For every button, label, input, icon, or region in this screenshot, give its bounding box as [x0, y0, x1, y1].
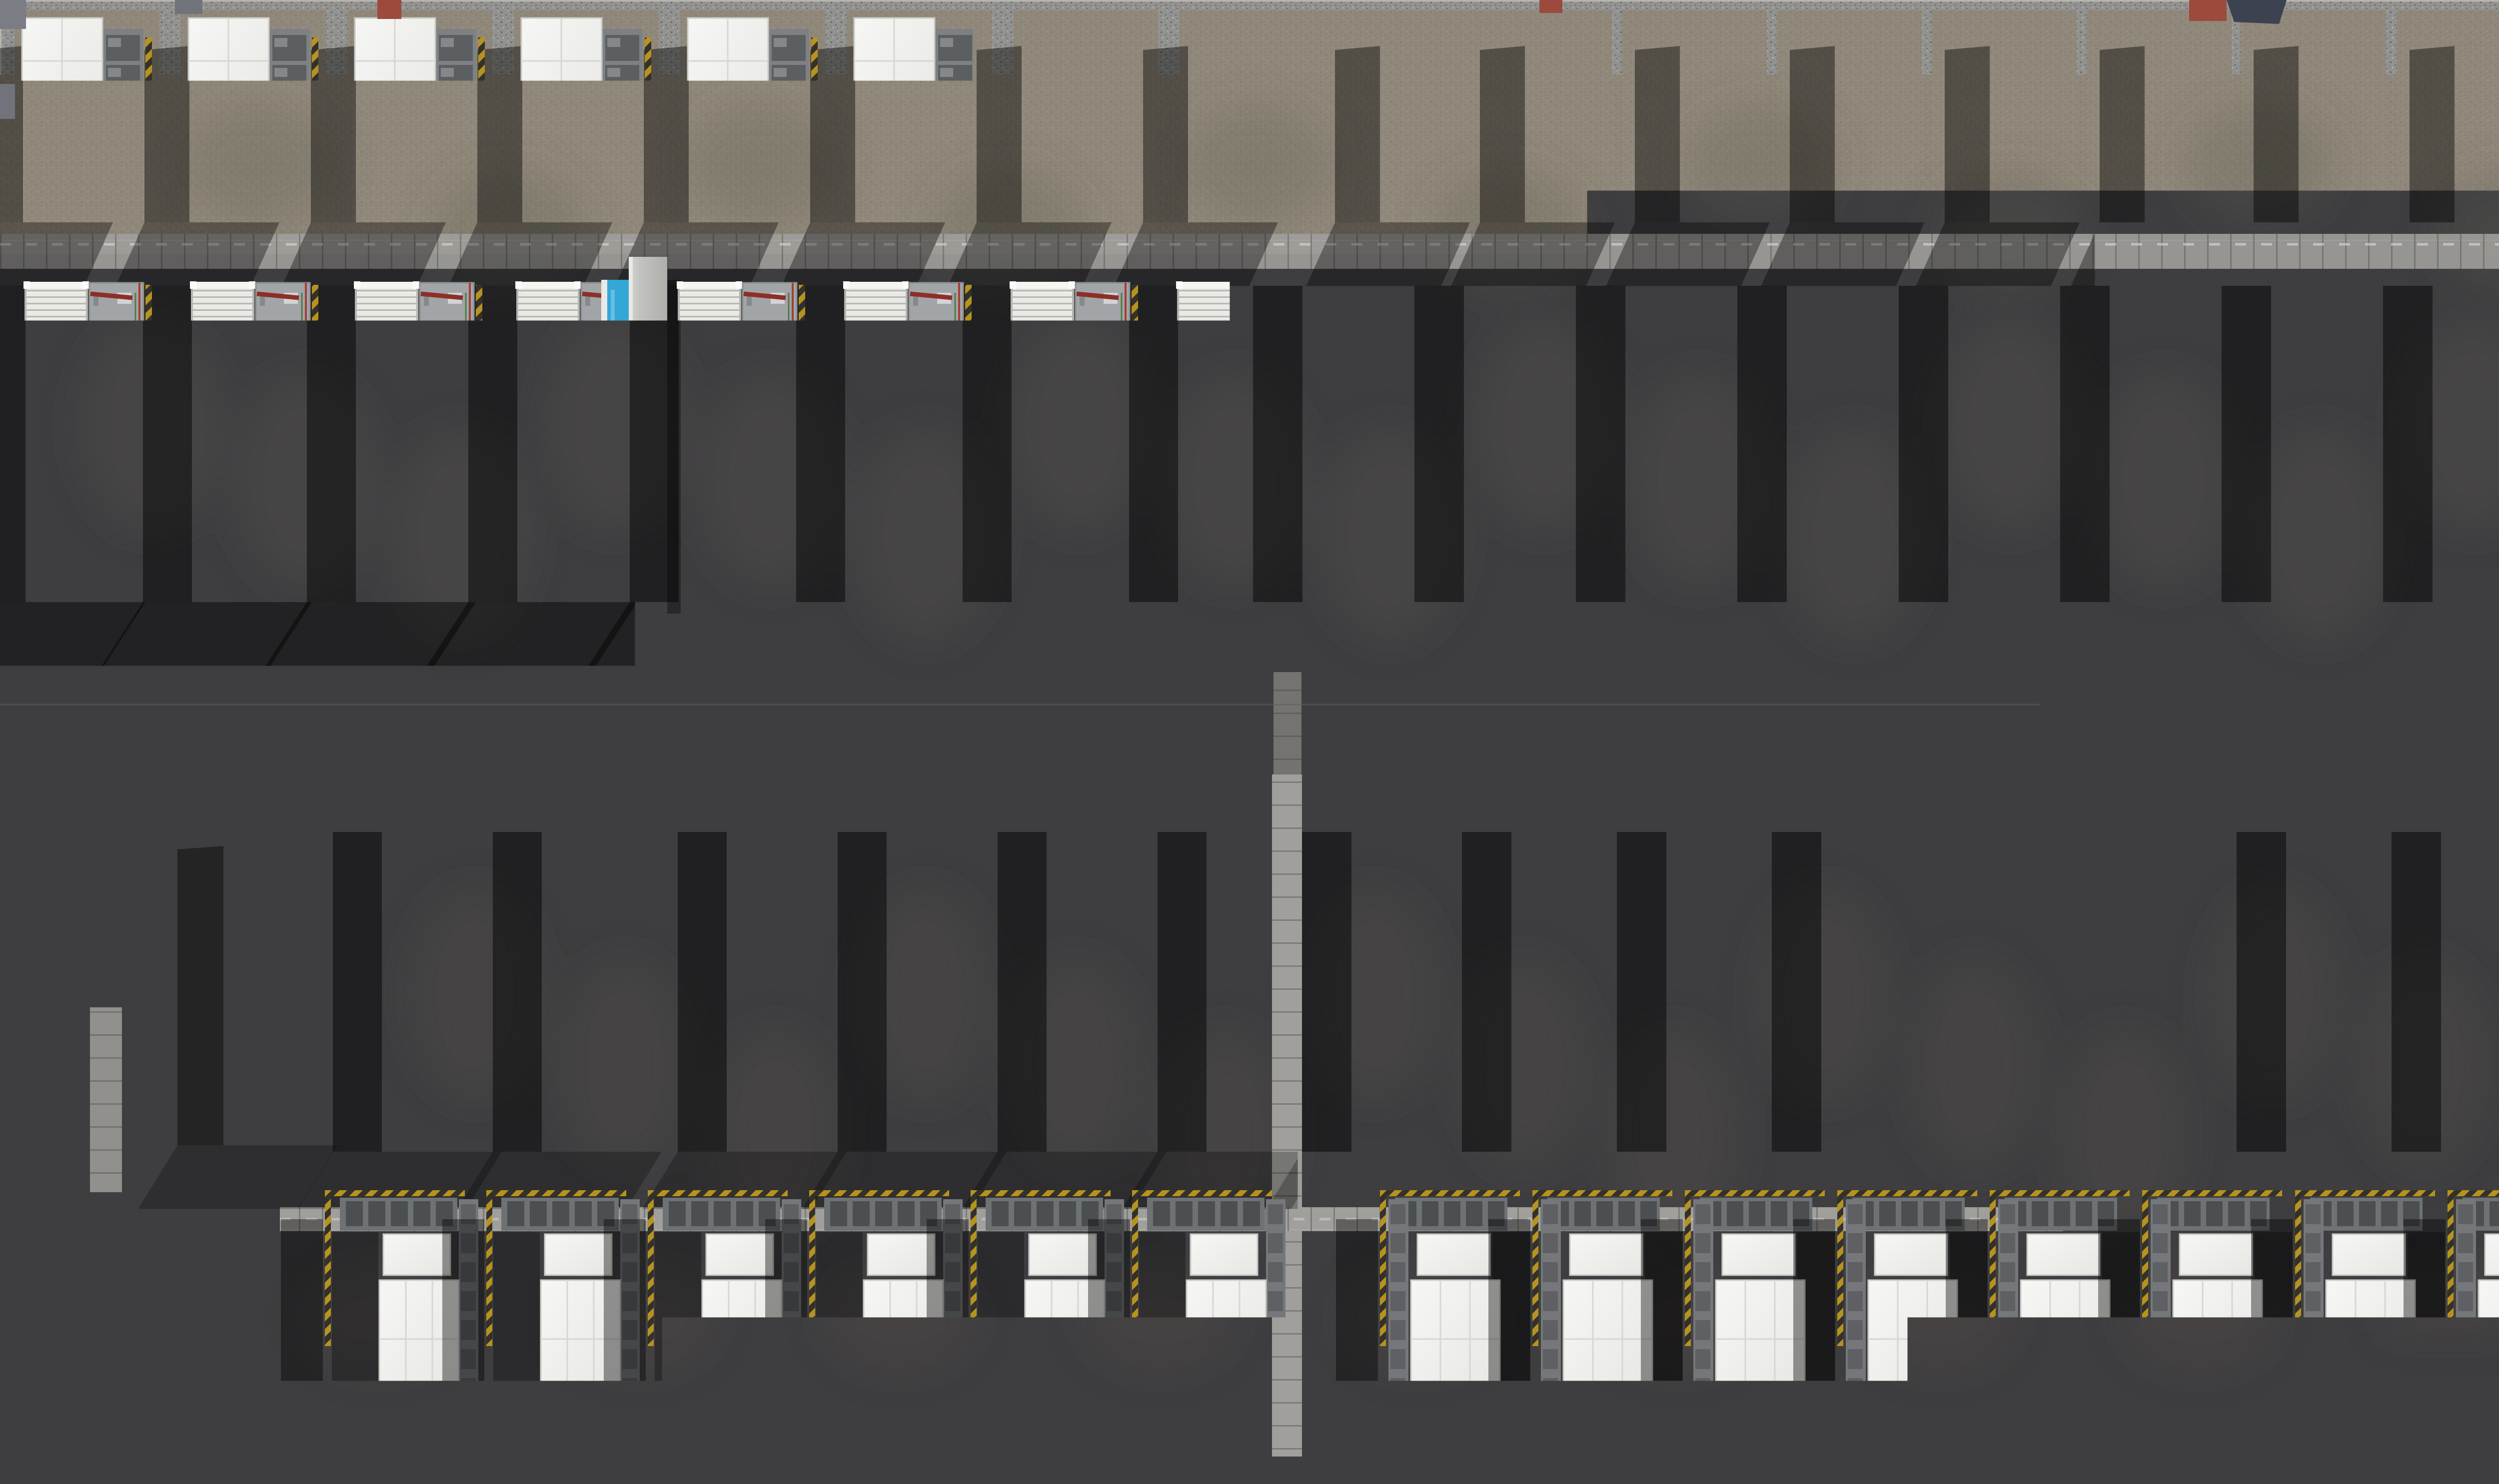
svg-text:DDCPC.CN: DDCPC.CN — [1541, 1462, 1618, 1481]
